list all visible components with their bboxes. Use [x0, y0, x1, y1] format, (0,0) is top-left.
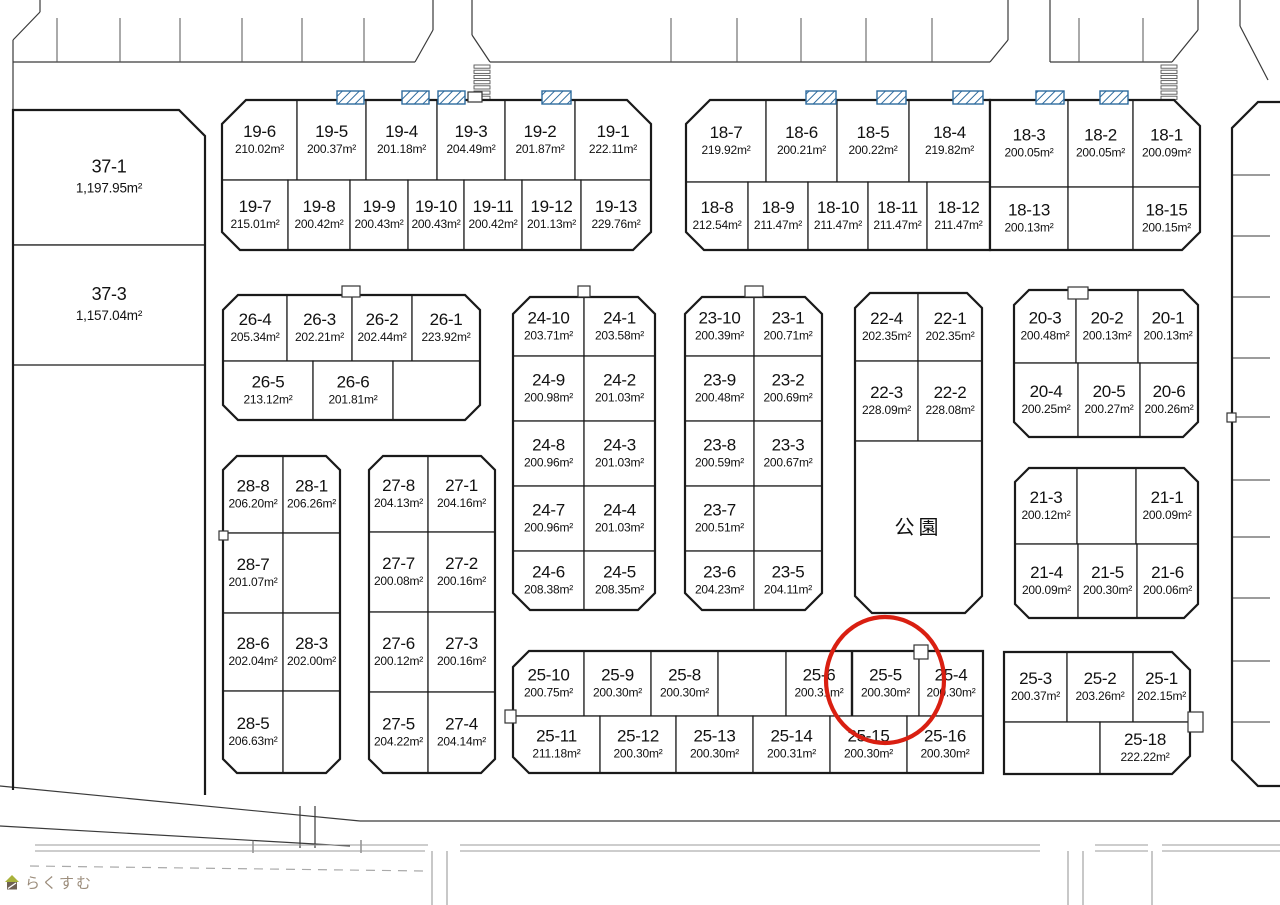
lot-26-4: 26-4205.34m²: [223, 295, 287, 361]
svg-text:200.13m²: 200.13m²: [1004, 221, 1053, 235]
svg-text:202.15m²: 202.15m²: [1137, 689, 1186, 703]
svg-text:200.48m²: 200.48m²: [1020, 329, 1069, 343]
svg-text:211.47m²: 211.47m²: [934, 218, 982, 232]
svg-text:204.22m²: 204.22m²: [374, 735, 423, 749]
lot-19-5: 19-5200.37m²: [297, 100, 366, 180]
svg-text:200.05m²: 200.05m²: [1076, 146, 1125, 160]
svg-text:212.54m²: 212.54m²: [692, 218, 741, 232]
lot-24-5: 24-5208.35m²: [584, 551, 655, 610]
lot-23-1: 23-1200.71m²: [754, 297, 822, 356]
svg-text:18-3: 18-3: [1013, 126, 1046, 145]
survey-marker: [468, 92, 482, 102]
lot-25-12: 25-12200.30m²: [600, 716, 676, 773]
hatch-mark: [438, 91, 465, 104]
hatch-mark: [877, 91, 906, 104]
block-21: 21-3200.12m²21-1200.09m²21-4200.09m²21-5…: [1015, 468, 1198, 618]
svg-text:23-10: 23-10: [699, 309, 741, 328]
hatch-mark: [542, 91, 571, 104]
svg-text:19-11: 19-11: [473, 197, 514, 216]
svg-text:20-6: 20-6: [1153, 382, 1186, 401]
svg-text:1,157.04m²: 1,157.04m²: [76, 308, 143, 323]
svg-text:200.13m²: 200.13m²: [1082, 329, 1131, 343]
block-25-west: 25-10200.75m²25-9200.30m²25-8200.30m²25-…: [513, 651, 983, 773]
lot-25-8: 25-8200.30m²: [651, 651, 718, 716]
svg-text:201.03m²: 201.03m²: [595, 521, 644, 535]
svg-text:23-2: 23-2: [772, 371, 805, 390]
lot-25-5: 25-5200.30m²: [852, 651, 919, 716]
lot-18-9: 18-9211.47m²: [748, 182, 808, 250]
svg-text:27-3: 27-3: [445, 634, 478, 653]
svg-text:27-7: 27-7: [382, 554, 415, 573]
svg-text:204.11m²: 204.11m²: [764, 583, 812, 597]
lot-18-5: 18-5200.22m²: [837, 100, 909, 182]
svg-text:204.23m²: 204.23m²: [695, 583, 744, 597]
hatch-mark: [1036, 91, 1064, 104]
lot-20-2: 20-2200.13m²: [1076, 290, 1138, 363]
svg-text:25-1: 25-1: [1145, 669, 1178, 688]
block-22: 22-4202.35m²22-1202.35m²22-3228.09m²22-2…: [855, 293, 982, 613]
survey-marker: [745, 286, 763, 297]
svg-text:200.30m²: 200.30m²: [920, 747, 969, 761]
lot-19-7: 19-7215.01m²: [222, 180, 288, 250]
block-27: 27-8204.13m²27-1204.16m²27-7200.08m²27-2…: [369, 456, 495, 773]
svg-text:21-3: 21-3: [1030, 488, 1063, 507]
svg-text:24-1: 24-1: [603, 309, 636, 328]
site-plan-svg: 37-11,197.95m²37-31,157.04m²19-6210.02m²…: [0, 0, 1280, 905]
svg-text:28-1: 28-1: [295, 477, 328, 496]
lot-27-7: 27-7200.08m²: [369, 532, 428, 612]
block-18-west: 18-7219.92m²18-6200.21m²18-5200.22m²18-4…: [686, 100, 990, 250]
survey-marker: [1227, 413, 1236, 422]
lot-28-6: 28-6202.04m²: [223, 613, 283, 691]
svg-text:公園: 公園: [895, 517, 943, 539]
svg-text:21-5: 21-5: [1091, 563, 1124, 582]
svg-text:19-8: 19-8: [303, 197, 336, 216]
svg-text:24-9: 24-9: [532, 371, 565, 390]
lot-19-13: 19-13229.76m²: [581, 180, 651, 250]
svg-text:22-4: 22-4: [870, 309, 903, 328]
svg-text:200.31m²: 200.31m²: [767, 747, 816, 761]
svg-text:25-6: 25-6: [803, 666, 836, 685]
svg-text:200.43m²: 200.43m²: [354, 217, 403, 231]
svg-text:25-16: 25-16: [924, 727, 966, 746]
lot-23-5: 23-5204.11m²: [754, 551, 822, 610]
lot-20-5: 20-5200.27m²: [1078, 363, 1140, 437]
svg-text:201.81m²: 201.81m²: [328, 393, 377, 407]
svg-text:200.30m²: 200.30m²: [844, 747, 893, 761]
lot-20-3: 20-3200.48m²: [1014, 290, 1076, 363]
svg-text:19-7: 19-7: [239, 197, 272, 216]
svg-text:200.59m²: 200.59m²: [695, 456, 744, 470]
lot-18-10: 18-10211.47m²: [808, 182, 868, 250]
svg-text:219.82m²: 219.82m²: [925, 143, 974, 157]
svg-text:23-3: 23-3: [772, 436, 805, 455]
lot-28-5: 28-5206.63m²: [223, 691, 283, 773]
lot-22-4: 22-4202.35m²: [855, 293, 918, 361]
svg-text:18-10: 18-10: [817, 198, 859, 217]
survey-marker: [1188, 712, 1203, 732]
block-18-east: 18-3200.05m²18-2200.05m²18-1200.09m²18-1…: [990, 100, 1200, 250]
svg-text:1,197.95m²: 1,197.95m²: [76, 181, 143, 196]
svg-text:208.35m²: 208.35m²: [595, 583, 644, 597]
lot-18-1: 18-1200.09m²: [1133, 100, 1200, 187]
svg-text:22-3: 22-3: [870, 383, 903, 402]
site-plan: 37-11,197.95m²37-31,157.04m²19-6210.02m²…: [0, 0, 1280, 905]
house-icon: [4, 875, 20, 890]
svg-text:213.12m²: 213.12m²: [243, 393, 292, 407]
svg-text:18-2: 18-2: [1084, 126, 1117, 145]
svg-text:21-6: 21-6: [1151, 563, 1184, 582]
svg-text:24-6: 24-6: [532, 563, 565, 582]
lot-22-3: 22-3228.09m²: [855, 361, 918, 441]
svg-text:200.42m²: 200.42m²: [294, 217, 343, 231]
svg-text:37-3: 37-3: [92, 284, 127, 304]
lot-20-1: 20-1200.13m²: [1138, 290, 1198, 363]
svg-text:19-3: 19-3: [455, 122, 488, 141]
svg-text:202.04m²: 202.04m²: [228, 654, 277, 668]
lot-27-6: 27-6200.12m²: [369, 612, 428, 692]
svg-text:200.30m²: 200.30m²: [1083, 583, 1132, 597]
lot-23-3: 23-3200.67m²: [754, 421, 822, 486]
lot-23-8: 23-8200.59m²: [685, 421, 754, 486]
lot-25-6: 25-6200.31m²: [786, 651, 852, 716]
svg-text:219.92m²: 219.92m²: [701, 143, 750, 157]
svg-text:26-4: 26-4: [239, 310, 272, 329]
lot-24-2: 24-2201.03m²: [584, 356, 655, 421]
svg-text:201.03m²: 201.03m²: [595, 391, 644, 405]
svg-text:206.26m²: 206.26m²: [287, 497, 336, 511]
svg-text:25-9: 25-9: [601, 666, 634, 685]
svg-text:18-13: 18-13: [1008, 201, 1050, 220]
svg-text:22-2: 22-2: [934, 383, 967, 402]
svg-text:200.67m²: 200.67m²: [763, 456, 812, 470]
svg-text:18-8: 18-8: [701, 198, 734, 217]
svg-text:200.98m²: 200.98m²: [524, 391, 573, 405]
svg-text:208.38m²: 208.38m²: [524, 583, 573, 597]
svg-text:18-4: 18-4: [933, 123, 966, 142]
svg-text:19-2: 19-2: [524, 122, 557, 141]
svg-text:37-1: 37-1: [92, 157, 127, 177]
svg-text:28-3: 28-3: [295, 634, 328, 653]
svg-text:200.22m²: 200.22m²: [848, 143, 897, 157]
survey-marker: [914, 645, 928, 659]
lot-25-9: 25-9200.30m²: [584, 651, 651, 716]
lot-19-3: 19-3204.49m²: [437, 100, 505, 180]
svg-text:206.20m²: 206.20m²: [228, 497, 277, 511]
lot-25-3: 25-3200.37m²: [1004, 652, 1067, 722]
svg-text:19-9: 19-9: [363, 197, 396, 216]
svg-text:200.30m²: 200.30m²: [861, 686, 910, 700]
block-20: 20-3200.48m²20-2200.13m²20-1200.13m²20-4…: [1014, 290, 1198, 437]
lot-18-2: 18-2200.05m²: [1068, 100, 1133, 187]
svg-text:25-11: 25-11: [536, 727, 577, 746]
empty-lot: [1004, 722, 1100, 774]
hatch-mark: [402, 91, 429, 104]
lot-28-8: 28-8206.20m²: [223, 456, 283, 533]
lot-26-3: 26-3202.21m²: [287, 295, 352, 361]
lot-23-7: 23-7200.51m²: [685, 486, 754, 551]
block-19: 19-6210.02m²19-5200.37m²19-4201.18m²19-3…: [222, 100, 651, 250]
svg-text:25-5: 25-5: [869, 666, 902, 685]
svg-text:27-4: 27-4: [445, 715, 478, 734]
svg-text:229.76m²: 229.76m²: [591, 217, 640, 231]
svg-text:26-5: 26-5: [252, 373, 285, 392]
svg-text:20-5: 20-5: [1093, 382, 1126, 401]
lot-24-4: 24-4201.03m²: [584, 486, 655, 551]
svg-text:202.44m²: 202.44m²: [357, 330, 406, 344]
svg-text:200.37m²: 200.37m²: [307, 142, 356, 156]
lot-28-3: 28-3202.00m²: [283, 613, 340, 691]
svg-text:201.03m²: 201.03m²: [595, 456, 644, 470]
svg-text:200.26m²: 200.26m²: [1144, 402, 1193, 416]
svg-text:211.47m²: 211.47m²: [754, 218, 802, 232]
lot-19-2: 19-2201.87m²: [505, 100, 575, 180]
svg-text:200.06m²: 200.06m²: [1143, 583, 1192, 597]
lot-37-1: 37-11,197.95m²: [13, 110, 205, 245]
lot-22-2: 22-2228.08m²: [918, 361, 982, 441]
empty-lot: [754, 486, 822, 551]
block-28: 28-8206.20m²28-1206.26m²28-7201.07m²28-6…: [223, 456, 340, 773]
lot-24-6: 24-6208.38m²: [513, 551, 584, 610]
svg-text:18-15: 18-15: [1146, 201, 1188, 220]
svg-text:202.35m²: 202.35m²: [862, 329, 911, 343]
lot-19-10: 19-10200.43m²: [408, 180, 464, 250]
lot-21-1: 21-1200.09m²: [1136, 468, 1198, 544]
lot-19-12: 19-12201.13m²: [522, 180, 581, 250]
svg-text:19-1: 19-1: [597, 122, 630, 141]
svg-text:19-13: 19-13: [595, 197, 637, 216]
svg-text:27-6: 27-6: [382, 634, 415, 653]
lot-20-6: 20-6200.26m²: [1140, 363, 1198, 437]
svg-text:25-8: 25-8: [668, 666, 701, 685]
svg-text:20-2: 20-2: [1091, 309, 1124, 328]
lot-24-7: 24-7200.96m²: [513, 486, 584, 551]
svg-text:200.30m²: 200.30m²: [660, 686, 709, 700]
svg-text:200.42m²: 200.42m²: [468, 217, 517, 231]
svg-text:23-8: 23-8: [703, 436, 736, 455]
lot-25-14: 25-14200.31m²: [753, 716, 830, 773]
svg-text:200.75m²: 200.75m²: [524, 686, 573, 700]
survey-marker: [1068, 287, 1088, 299]
svg-text:21-1: 21-1: [1151, 488, 1184, 507]
svg-text:201.07m²: 201.07m²: [228, 575, 277, 589]
lot-25-11: 25-11211.18m²: [513, 716, 600, 773]
svg-text:200.30m²: 200.30m²: [690, 747, 739, 761]
lot-26-6: 26-6201.81m²: [313, 361, 393, 420]
svg-text:200.05m²: 200.05m²: [1004, 146, 1053, 160]
svg-text:25-12: 25-12: [617, 727, 659, 746]
svg-text:204.13m²: 204.13m²: [374, 496, 423, 510]
lot-23-9: 23-9200.48m²: [685, 356, 754, 421]
lot-24-8: 24-8200.96m²: [513, 421, 584, 486]
svg-text:26-1: 26-1: [430, 310, 463, 329]
lot-28-7: 28-7201.07m²: [223, 533, 283, 613]
svg-text:25-13: 25-13: [694, 727, 736, 746]
svg-text:200.16m²: 200.16m²: [437, 574, 486, 588]
svg-text:203.71m²: 203.71m²: [524, 329, 573, 343]
svg-text:200.30m²: 200.30m²: [593, 686, 642, 700]
svg-text:25-18: 25-18: [1124, 730, 1166, 749]
lot-23-10: 23-10200.39m²: [685, 297, 754, 356]
svg-text:24-4: 24-4: [603, 501, 636, 520]
block-25-east: 25-3200.37m²25-2203.26m²25-1202.15m²25-1…: [1004, 652, 1190, 774]
hatch-mark: [337, 91, 364, 104]
svg-text:205.34m²: 205.34m²: [230, 330, 279, 344]
svg-text:24-3: 24-3: [603, 436, 636, 455]
hatch-mark: [1100, 91, 1128, 104]
lot-22-1: 22-1202.35m²: [918, 293, 982, 361]
svg-text:25-2: 25-2: [1084, 669, 1117, 688]
lot-25-2: 25-2203.26m²: [1067, 652, 1133, 722]
svg-text:200.48m²: 200.48m²: [695, 391, 744, 405]
lot-24-3: 24-3201.03m²: [584, 421, 655, 486]
svg-text:200.09m²: 200.09m²: [1022, 583, 1071, 597]
svg-text:23-5: 23-5: [772, 563, 805, 582]
empty-lot: [1077, 468, 1136, 544]
svg-text:200.69m²: 200.69m²: [763, 391, 812, 405]
svg-text:20-4: 20-4: [1030, 382, 1063, 401]
lot-26-1: 26-1223.92m²: [412, 295, 480, 361]
empty-lot: [1068, 187, 1133, 250]
lot-25-18: 25-18222.22m²: [1100, 722, 1190, 774]
svg-text:26-6: 26-6: [337, 373, 370, 392]
svg-text:25-14: 25-14: [771, 727, 813, 746]
svg-text:200.96m²: 200.96m²: [524, 456, 573, 470]
svg-text:21-4: 21-4: [1030, 563, 1063, 582]
svg-text:200.27m²: 200.27m²: [1084, 402, 1133, 416]
svg-text:200.71m²: 200.71m²: [763, 329, 812, 343]
svg-text:19-6: 19-6: [243, 122, 276, 141]
svg-text:202.35m²: 202.35m²: [925, 329, 974, 343]
svg-text:201.13m²: 201.13m²: [527, 217, 576, 231]
svg-text:206.63m²: 206.63m²: [228, 734, 277, 748]
lot-18-12: 18-12211.47m²: [927, 182, 990, 250]
svg-text:26-3: 26-3: [303, 310, 336, 329]
lot-28-1: 28-1206.26m²: [283, 456, 340, 533]
svg-text:201.87m²: 201.87m²: [515, 142, 564, 156]
svg-text:210.02m²: 210.02m²: [235, 142, 284, 156]
empty-lot: [718, 651, 786, 716]
svg-text:200.12m²: 200.12m²: [1021, 508, 1070, 522]
svg-text:24-7: 24-7: [532, 501, 565, 520]
lot-24-10: 24-10203.71m²: [513, 297, 584, 356]
block-26: 26-4205.34m²26-3202.21m²26-2202.44m²26-1…: [223, 295, 480, 420]
svg-text:204.14m²: 204.14m²: [437, 735, 486, 749]
lot-21-3: 21-3200.12m²: [1015, 468, 1077, 544]
dashed-centerline: [30, 866, 425, 871]
lot-19-11: 19-11200.42m²: [464, 180, 522, 250]
lot-27-1: 27-1204.16m²: [428, 456, 495, 532]
svg-text:200.13m²: 200.13m²: [1143, 329, 1192, 343]
svg-text:18-7: 18-7: [710, 123, 743, 142]
empty-lot: [283, 691, 340, 773]
survey-marker: [505, 710, 516, 723]
svg-text:19-4: 19-4: [385, 122, 418, 141]
survey-marker: [578, 286, 590, 297]
lot-19-9: 19-9200.43m²: [350, 180, 408, 250]
svg-text:200.96m²: 200.96m²: [524, 521, 573, 535]
svg-text:211.47m²: 211.47m²: [873, 218, 921, 232]
svg-text:201.18m²: 201.18m²: [377, 142, 426, 156]
svg-text:18-5: 18-5: [857, 123, 890, 142]
lot-23-2: 23-2200.69m²: [754, 356, 822, 421]
svg-text:23-9: 23-9: [703, 371, 736, 390]
svg-text:200.16m²: 200.16m²: [437, 654, 486, 668]
svg-text:202.00m²: 202.00m²: [287, 654, 336, 668]
lot-24-1: 24-1203.58m²: [584, 297, 655, 356]
svg-text:24-5: 24-5: [603, 563, 636, 582]
svg-text:19-5: 19-5: [315, 122, 348, 141]
svg-text:28-6: 28-6: [237, 634, 270, 653]
svg-text:25-4: 25-4: [935, 666, 968, 685]
empty-lot: [393, 361, 480, 420]
svg-text:26-2: 26-2: [366, 310, 399, 329]
svg-text:211.18m²: 211.18m²: [532, 747, 580, 761]
lot-25-4: 25-4200.30m²: [919, 651, 983, 716]
svg-text:223.92m²: 223.92m²: [421, 330, 470, 344]
svg-text:25-3: 25-3: [1019, 669, 1052, 688]
svg-text:200.31m²: 200.31m²: [794, 686, 843, 700]
svg-text:25-10: 25-10: [528, 666, 570, 685]
svg-text:200.51m²: 200.51m²: [695, 521, 744, 535]
svg-text:24-10: 24-10: [528, 309, 570, 328]
lot-27-8: 27-8204.13m²: [369, 456, 428, 532]
empty-lot: [283, 533, 340, 613]
rakusumu-logo: らくすむ: [4, 872, 93, 893]
svg-text:18-12: 18-12: [938, 198, 980, 217]
svg-text:27-8: 27-8: [382, 476, 415, 495]
block-23: 23-10200.39m²23-1200.71m²23-9200.48m²23-…: [685, 297, 822, 610]
lot-37-3: 37-31,157.04m²: [13, 245, 205, 365]
hatch-mark: [953, 91, 983, 104]
lot-18-3: 18-3200.05m²: [990, 100, 1068, 187]
svg-text:200.30m²: 200.30m²: [926, 686, 975, 700]
lot-18-4: 18-4219.82m²: [909, 100, 990, 182]
hatch-mark: [806, 91, 836, 104]
svg-text:27-1: 27-1: [445, 476, 478, 495]
svg-text:27-5: 27-5: [382, 715, 415, 734]
svg-text:200.25m²: 200.25m²: [1021, 402, 1070, 416]
svg-text:228.08m²: 228.08m²: [925, 403, 974, 417]
lot-26-2: 26-2202.44m²: [352, 295, 412, 361]
svg-text:200.15m²: 200.15m²: [1142, 221, 1191, 235]
lot-21-4: 21-4200.09m²: [1015, 544, 1078, 618]
svg-text:23-1: 23-1: [772, 309, 805, 328]
lot-27-3: 27-3200.16m²: [428, 612, 495, 692]
svg-text:200.30m²: 200.30m²: [613, 747, 662, 761]
svg-text:200.08m²: 200.08m²: [374, 574, 423, 588]
svg-text:18-9: 18-9: [762, 198, 795, 217]
svg-text:24-2: 24-2: [603, 371, 636, 390]
svg-text:20-3: 20-3: [1029, 309, 1062, 328]
svg-text:23-7: 23-7: [703, 501, 736, 520]
block-right-unlabeled: [1232, 102, 1280, 786]
svg-text:211.47m²: 211.47m²: [814, 218, 862, 232]
svg-text:200.09m²: 200.09m²: [1142, 508, 1191, 522]
svg-text:18-11: 18-11: [877, 198, 918, 217]
svg-text:22-1: 22-1: [934, 309, 967, 328]
lot-25-10: 25-10200.75m²: [513, 651, 584, 716]
park-area: 公園: [855, 441, 982, 613]
svg-text:24-8: 24-8: [532, 436, 565, 455]
svg-text:204.16m²: 204.16m²: [437, 496, 486, 510]
logo-text: らくすむ: [25, 872, 93, 893]
svg-text:215.01m²: 215.01m²: [230, 217, 279, 231]
svg-text:200.12m²: 200.12m²: [374, 654, 423, 668]
lot-18-11: 18-11211.47m²: [868, 182, 927, 250]
survey-marker: [219, 531, 228, 540]
lot-24-9: 24-9200.98m²: [513, 356, 584, 421]
